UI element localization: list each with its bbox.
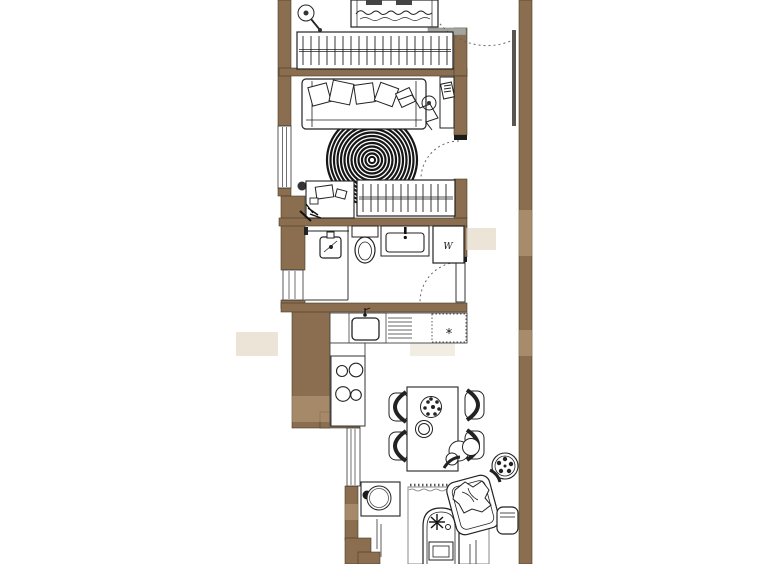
sofa xyxy=(302,79,438,130)
desk xyxy=(300,181,354,221)
toilet xyxy=(352,226,378,263)
window-3 xyxy=(347,428,360,486)
window-1 xyxy=(278,126,291,188)
floor-lamp xyxy=(298,5,322,32)
side-table-small xyxy=(497,507,518,534)
living-room-door-arc xyxy=(421,141,459,179)
dining-chair xyxy=(389,431,408,461)
stove xyxy=(331,356,365,426)
table-plant xyxy=(421,397,442,418)
washing-machine-label: W xyxy=(443,242,453,252)
media-table xyxy=(361,482,400,516)
entrance-door-leaf xyxy=(512,30,516,126)
bed xyxy=(351,0,438,27)
dining-chair xyxy=(465,390,484,420)
dishwasher: * xyxy=(432,314,466,342)
dishwasher-label: * xyxy=(446,327,453,342)
media-table-stand xyxy=(377,519,381,557)
bathroom-door xyxy=(420,262,465,302)
floor-plan: W * xyxy=(0,0,758,564)
window-2 xyxy=(283,270,303,300)
desk-chair xyxy=(298,182,307,191)
dining-chair xyxy=(389,392,408,422)
washing-machine: W xyxy=(433,226,464,263)
wardrobe-2 xyxy=(357,180,455,216)
living-side-table xyxy=(440,77,454,128)
shower xyxy=(304,226,349,300)
table-bowl xyxy=(416,421,433,438)
wardrobe-1 xyxy=(297,32,453,69)
washbasin xyxy=(381,226,429,256)
